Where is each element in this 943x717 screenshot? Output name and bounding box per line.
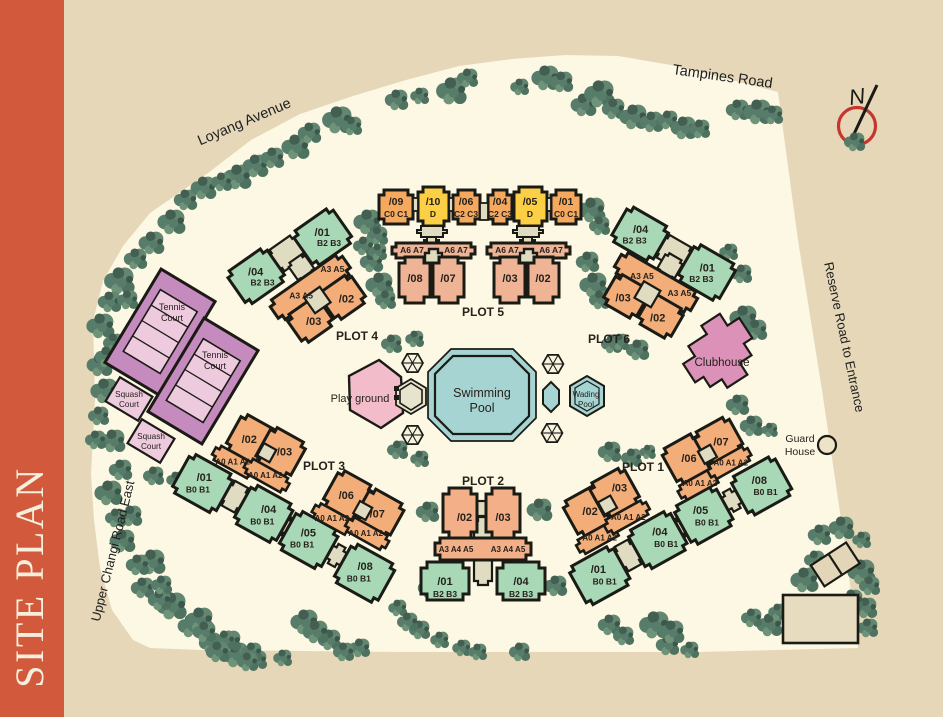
svg-text:Pool: Pool [578,400,594,409]
svg-text:Squash: Squash [137,432,165,441]
svg-text:/08: /08 [357,561,372,573]
svg-text:PLOT 5: PLOT 5 [462,305,504,319]
svg-text:A3 A4 A5: A3 A4 A5 [439,545,474,554]
svg-text:B0 B1: B0 B1 [250,517,274,527]
svg-text:Court: Court [204,361,227,371]
svg-text:B0 B1: B0 B1 [695,517,719,527]
svg-text:/01: /01 [437,576,452,588]
svg-text:PLOT 6: PLOT 6 [588,332,630,346]
svg-text:A0 A1 A2: A0 A1 A2 [683,479,718,488]
svg-text:B0 B1: B0 B1 [290,540,314,550]
svg-text:/03: /03 [615,293,630,305]
svg-text:Court: Court [161,313,184,323]
svg-text:/03: /03 [612,483,627,495]
svg-text:Clubhouse: Clubhouse [695,357,750,369]
svg-text:/04: /04 [633,224,649,236]
svg-text:/03: /03 [502,273,517,285]
svg-text:B2 B3: B2 B3 [689,274,713,284]
svg-text:A3 A4 A5: A3 A4 A5 [491,545,526,554]
svg-text:PLOT 4: PLOT 4 [336,329,378,343]
svg-text:A3 A5: A3 A5 [630,271,654,281]
svg-text:A6 A7: A6 A7 [444,245,468,255]
svg-text:/02: /02 [535,273,550,285]
svg-text:/05: /05 [693,505,708,517]
svg-text:A0 A1 A2: A0 A1 A2 [215,458,250,467]
svg-text:Guard: Guard [785,433,814,445]
svg-text:/05: /05 [301,527,316,539]
svg-text:Pool: Pool [469,401,494,415]
svg-text:A0 A1 A2: A0 A1 A2 [582,533,617,542]
svg-text:C2 C3: C2 C3 [488,209,512,219]
svg-text:C0 C1: C0 C1 [554,209,578,219]
svg-text:Play ground: Play ground [331,393,390,405]
svg-text:/06: /06 [459,196,474,208]
svg-text:/08: /08 [407,273,422,285]
svg-text:PLOT 3: PLOT 3 [303,459,345,473]
svg-text:/04: /04 [513,576,529,588]
svg-text:/03: /03 [306,316,321,328]
svg-text:/03: /03 [277,447,292,459]
svg-text:PLOT 2: PLOT 2 [462,474,504,488]
svg-text:/05: /05 [523,196,538,208]
svg-text:/09: /09 [389,196,404,208]
svg-text:C0 C1: C0 C1 [384,209,408,219]
svg-text:B2 B3: B2 B3 [433,589,457,599]
svg-text:D: D [527,209,533,219]
svg-text:A0 A1 A2: A0 A1 A2 [713,458,748,467]
svg-text:D: D [430,209,436,219]
svg-text:A6 A7: A6 A7 [400,245,424,255]
svg-text:Court: Court [119,400,140,409]
svg-text:/06: /06 [681,453,696,465]
svg-text:A3 A5: A3 A5 [321,264,345,274]
svg-text:B0 B1: B0 B1 [754,487,778,497]
svg-text:/10: /10 [426,196,441,208]
svg-text:SITE PLAN: SITE PLAN [7,466,52,687]
svg-text:/02: /02 [582,506,597,518]
svg-text:Tennis: Tennis [202,350,229,360]
svg-text:/04: /04 [261,504,277,516]
svg-text:A0 A1 A2: A0 A1 A2 [315,514,350,523]
svg-text:/01: /01 [591,564,606,576]
svg-text:House: House [785,446,816,458]
svg-text:/08: /08 [752,475,767,487]
svg-text:A6 A7: A6 A7 [539,245,563,255]
svg-text:B2 B3: B2 B3 [509,589,533,599]
svg-text:Swimming: Swimming [453,386,511,400]
svg-text:/01: /01 [559,196,574,208]
svg-text:B2 B3: B2 B3 [317,238,341,248]
svg-text:/07: /07 [370,508,385,520]
svg-text:B2 B3: B2 B3 [623,236,647,246]
svg-text:Wading: Wading [573,390,600,399]
svg-text:/07: /07 [440,273,455,285]
svg-text:/02: /02 [339,293,354,305]
svg-text:Squash: Squash [115,390,143,399]
svg-text:Court: Court [141,442,162,451]
svg-text:A3 A5: A3 A5 [667,288,691,298]
svg-text:/01: /01 [197,472,212,484]
svg-text:B0 B1: B0 B1 [347,573,371,583]
svg-text:Tennis: Tennis [159,302,186,312]
svg-text:B0 B1: B0 B1 [186,484,210,494]
svg-text:PLOT 1: PLOT 1 [622,460,664,474]
svg-text:/02: /02 [242,434,257,446]
svg-text:/07: /07 [713,437,728,449]
svg-text:B2 B3: B2 B3 [250,277,274,287]
svg-text:B0 B1: B0 B1 [593,576,617,586]
svg-text:/04: /04 [493,196,508,208]
svg-text:B0 B1: B0 B1 [654,539,678,549]
svg-text:/02: /02 [457,512,472,524]
svg-text:C2 C3: C2 C3 [454,209,478,219]
svg-text:A0 A1 A2: A0 A1 A2 [348,529,383,538]
svg-text:/04: /04 [652,527,668,539]
svg-text:/06: /06 [339,490,354,502]
svg-text:A0 A1 A2: A0 A1 A2 [248,471,283,480]
svg-text:/03: /03 [495,512,510,524]
svg-text:A0 A1 A2: A0 A1 A2 [611,513,646,522]
svg-text:/02: /02 [650,313,665,325]
svg-text:/01: /01 [700,263,715,275]
svg-text:A3 A5: A3 A5 [289,291,313,301]
svg-text:A6 A7: A6 A7 [495,245,519,255]
